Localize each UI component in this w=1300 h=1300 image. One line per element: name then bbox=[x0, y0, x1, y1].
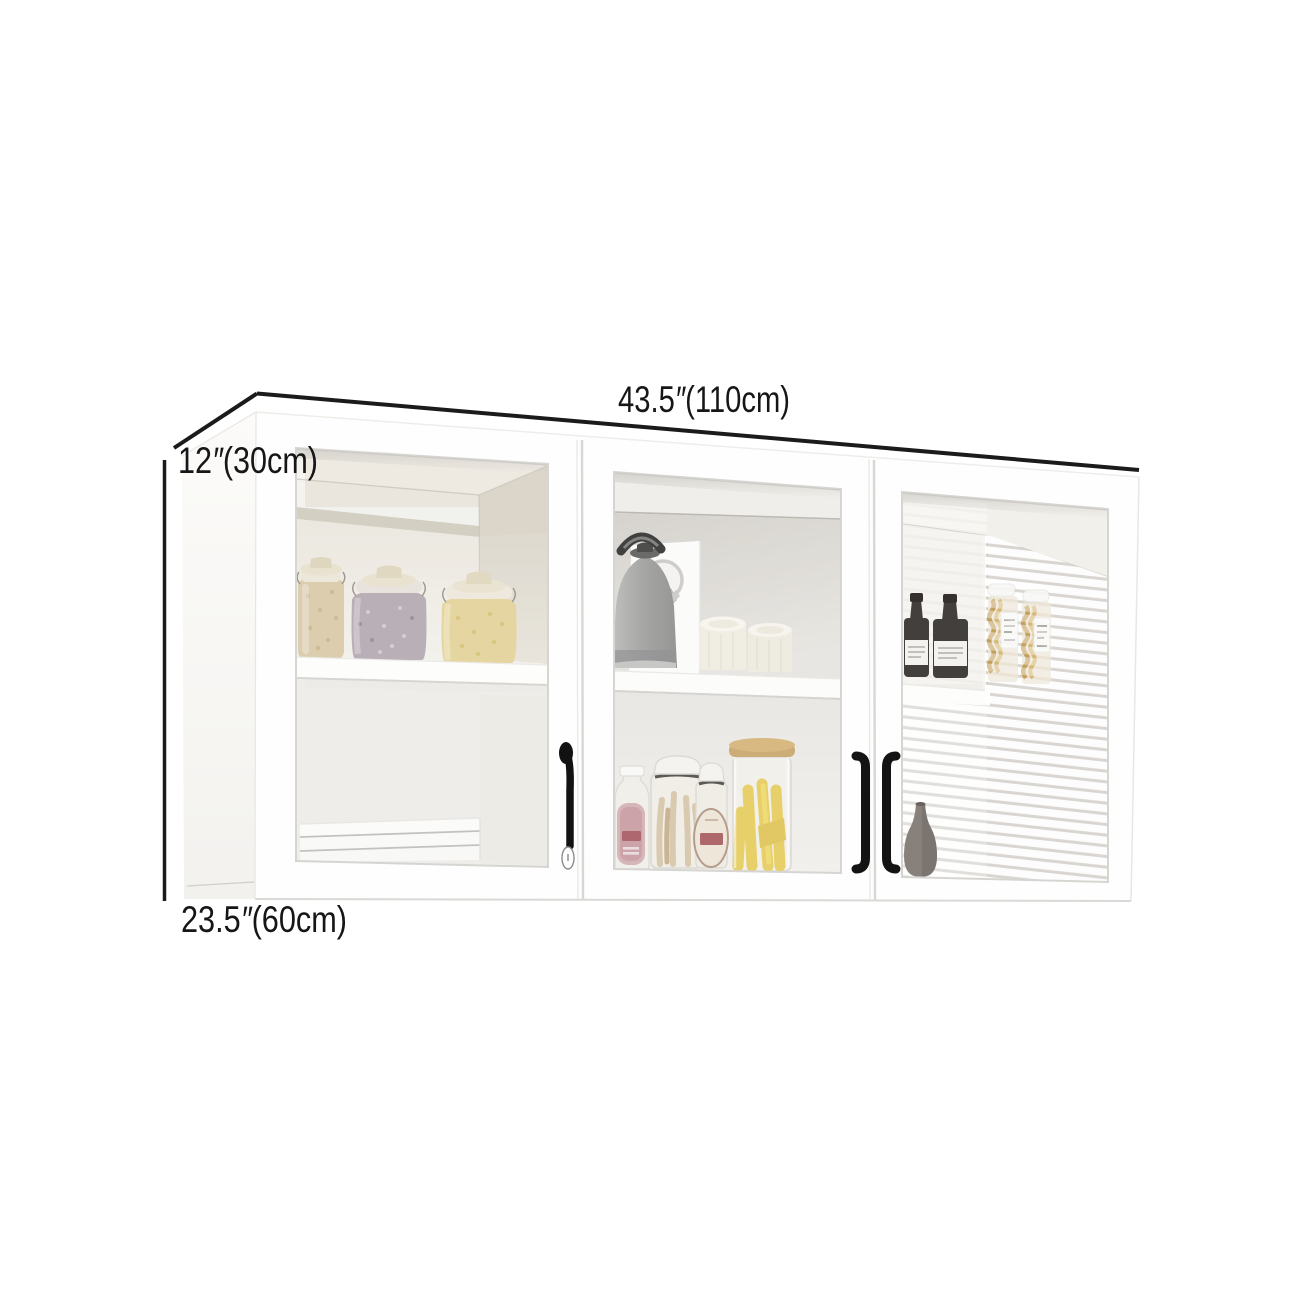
svg-text:12″(30cm): 12″(30cm) bbox=[178, 440, 318, 481]
svg-text:43.5″(110cm): 43.5″(110cm) bbox=[618, 379, 790, 420]
svg-text:23.5″(60cm): 23.5″(60cm) bbox=[181, 899, 347, 940]
